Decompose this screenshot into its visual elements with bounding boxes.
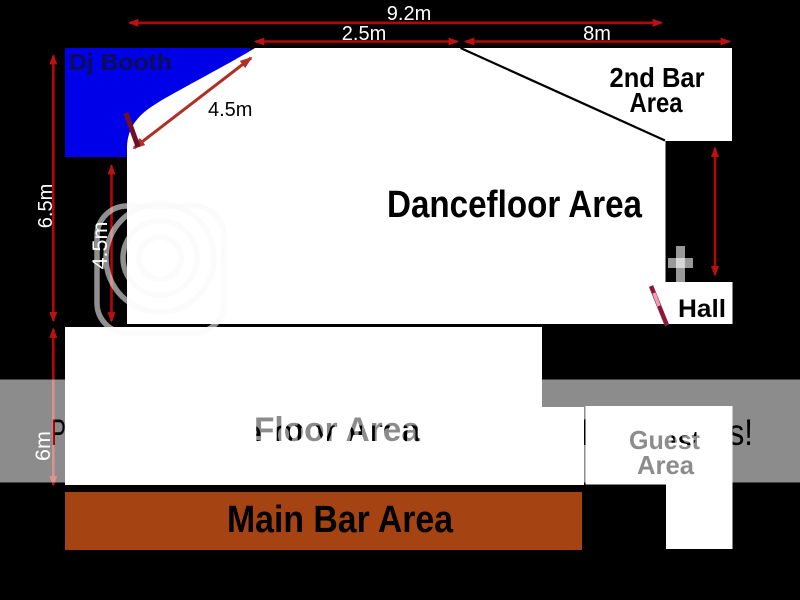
- svg-text:9.2m: 9.2m: [387, 3, 431, 25]
- svg-text:8m: 8m: [583, 23, 611, 45]
- svg-text:Hall: Hall: [678, 295, 726, 323]
- svg-text:Dj Booth: Dj Booth: [69, 49, 172, 75]
- svg-text:2.5m: 2.5m: [342, 23, 386, 45]
- svg-text:4.5m: 4.5m: [208, 99, 252, 121]
- svg-text:Area: Area: [630, 87, 683, 118]
- svg-text:Main Bar Area: Main Bar Area: [227, 499, 454, 541]
- svg-text:Dancefloor Area: Dancefloor Area: [387, 184, 643, 226]
- svg-text:6.5m: 6.5m: [35, 184, 57, 228]
